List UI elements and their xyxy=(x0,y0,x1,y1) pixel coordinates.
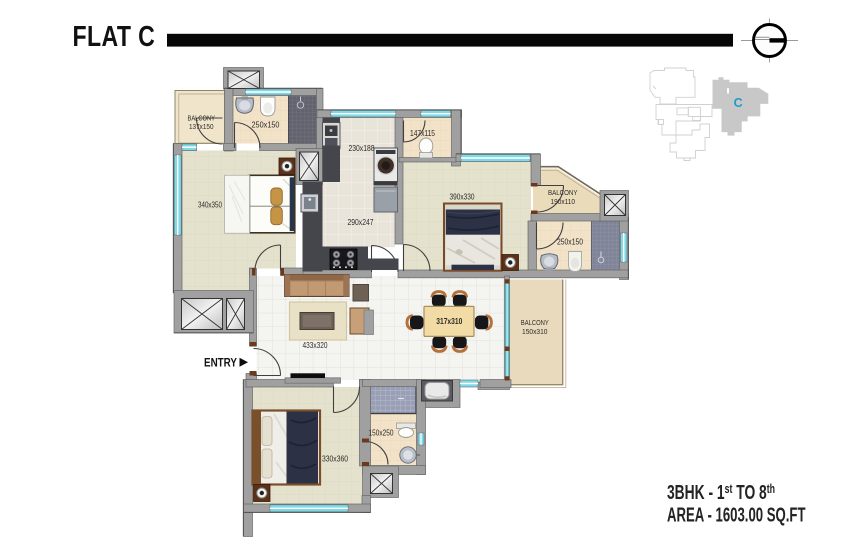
svg-text:ENTRY: ENTRY xyxy=(204,356,237,370)
svg-text:290x247: 290x247 xyxy=(348,218,374,227)
svg-text:147x115: 147x115 xyxy=(410,129,436,138)
svg-text:317x310: 317x310 xyxy=(436,316,462,326)
svg-text:BALCONY: BALCONY xyxy=(548,188,578,197)
svg-text:150x310: 150x310 xyxy=(522,327,548,336)
svg-text:340x350: 340x350 xyxy=(198,201,222,210)
svg-text:FLAT C: FLAT C xyxy=(73,22,156,53)
svg-text:190x110: 190x110 xyxy=(551,197,576,206)
svg-text:137x150: 137x150 xyxy=(189,122,214,131)
svg-text:BALCONY: BALCONY xyxy=(521,318,549,327)
svg-text:150x250: 150x250 xyxy=(369,429,395,438)
svg-text:250x150: 250x150 xyxy=(252,121,281,130)
svg-text:3BHK - 1st TO 8th: 3BHK - 1st TO 8th xyxy=(667,480,775,503)
svg-text:AREA - 1603.00 SQ.FT: AREA - 1603.00 SQ.FT xyxy=(667,504,806,527)
svg-text:230x188: 230x188 xyxy=(349,144,376,153)
svg-text:C: C xyxy=(734,96,743,110)
svg-text:433x320: 433x320 xyxy=(303,341,329,350)
svg-text:330x360: 330x360 xyxy=(322,455,349,464)
svg-text:390x330: 390x330 xyxy=(450,193,476,202)
svg-text:250x150: 250x150 xyxy=(557,238,584,247)
